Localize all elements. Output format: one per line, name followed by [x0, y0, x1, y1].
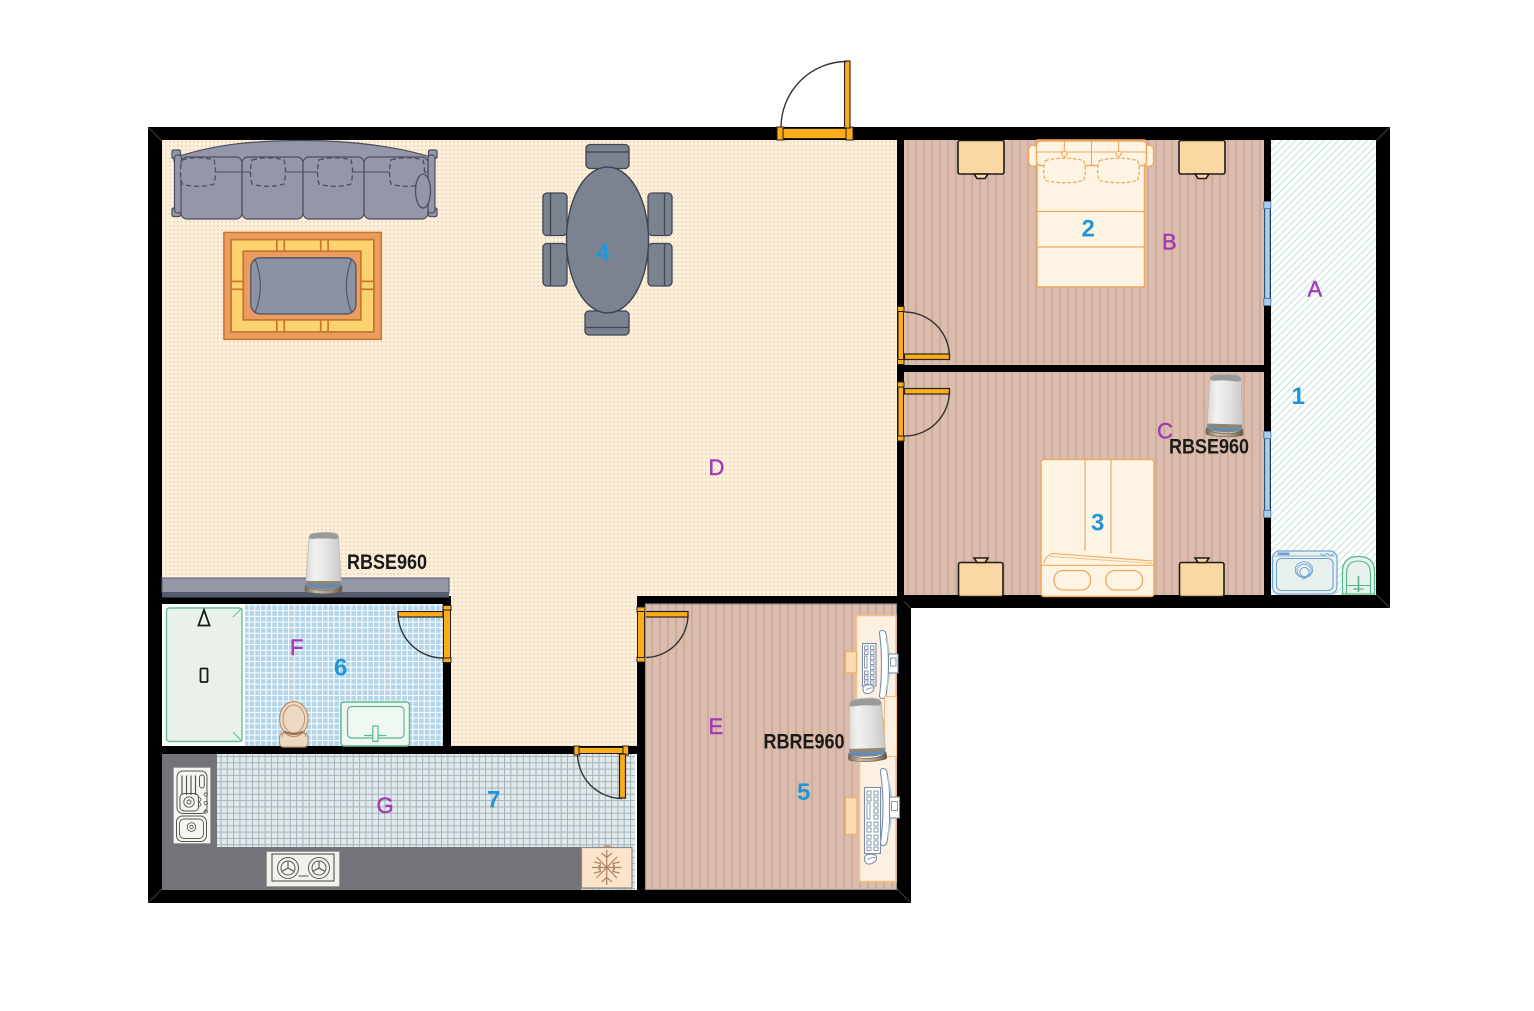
svg-text:D: D	[709, 455, 725, 480]
svg-text:4: 4	[596, 240, 610, 267]
svg-text:6: 6	[334, 655, 347, 682]
svg-text:B: B	[1162, 230, 1177, 255]
svg-text:3: 3	[1091, 510, 1104, 537]
svg-text:RBSE960: RBSE960	[347, 550, 427, 574]
svg-text:1: 1	[1292, 383, 1305, 410]
svg-text:5: 5	[797, 779, 810, 806]
svg-text:7: 7	[487, 787, 500, 814]
svg-text:E: E	[709, 714, 724, 739]
svg-text:A: A	[1308, 277, 1323, 302]
svg-text:2: 2	[1082, 216, 1095, 243]
svg-text:F: F	[290, 635, 303, 660]
svg-text:G: G	[377, 793, 394, 818]
svg-text:RBSE960: RBSE960	[1169, 435, 1249, 459]
svg-text:RBRE960: RBRE960	[764, 730, 845, 754]
